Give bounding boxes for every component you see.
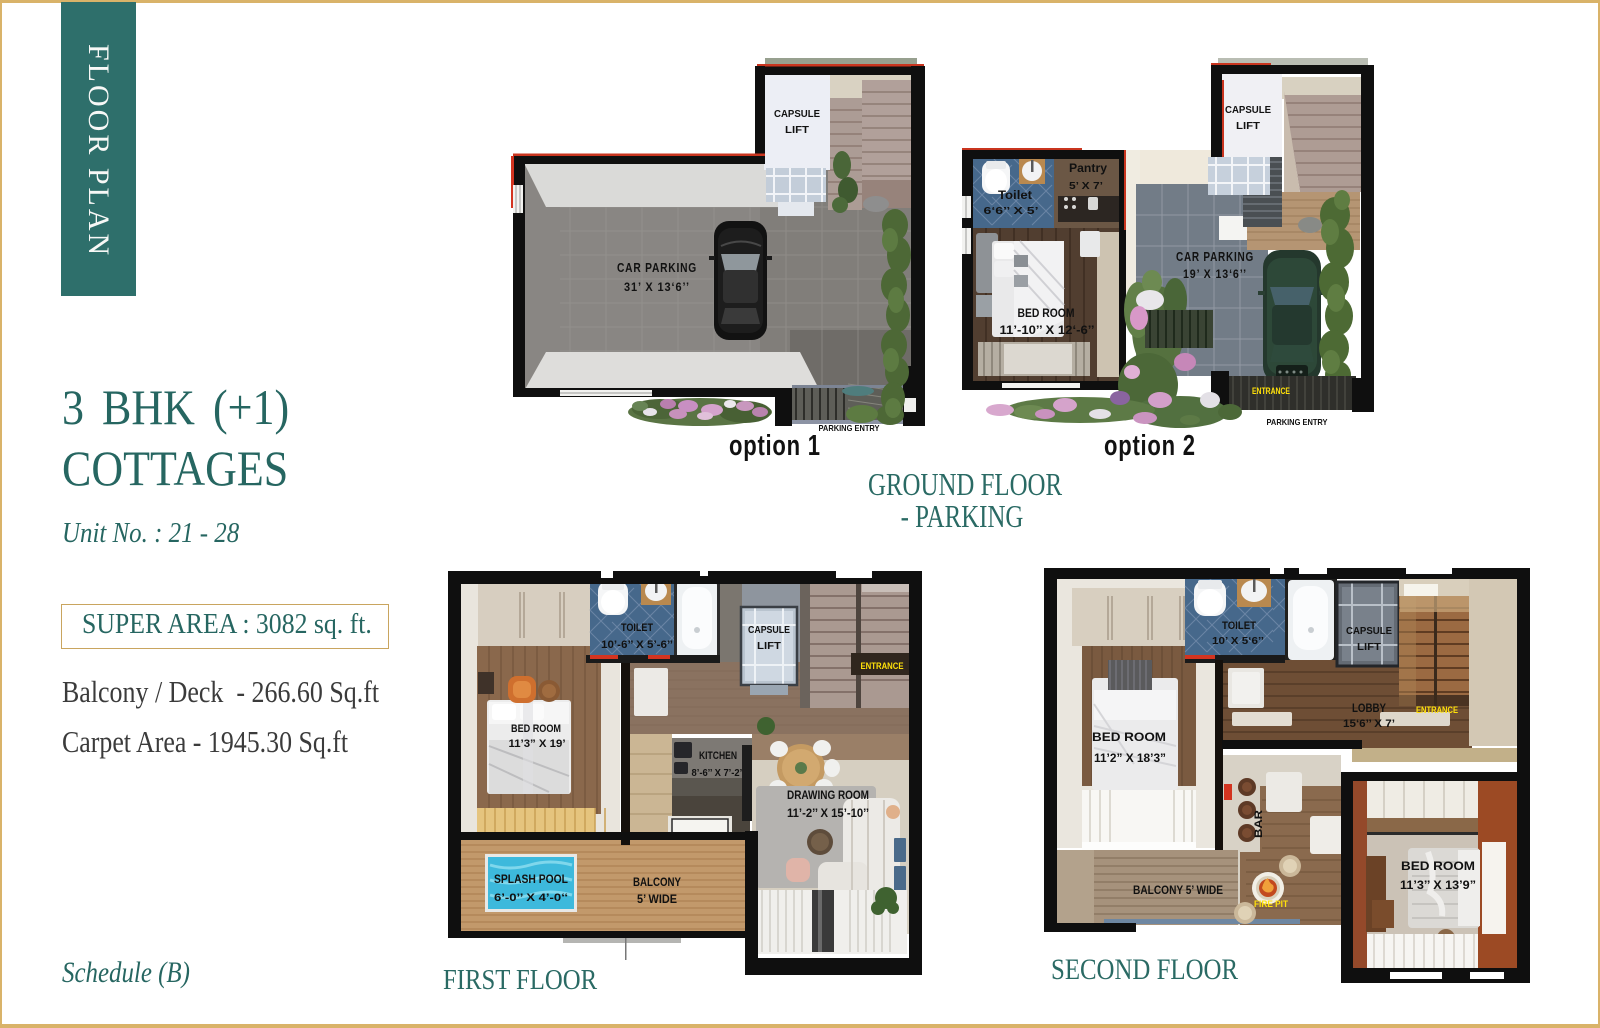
svg-text:CAPSULE: CAPSULE [1225, 105, 1271, 116]
svg-text:BED ROOM: BED ROOM [1401, 859, 1475, 873]
svg-text:31’ X 13‘6’’: 31’ X 13‘6’’ [624, 280, 690, 294]
svg-text:Toilet: Toilet [998, 188, 1032, 202]
svg-text:6’-0’’ X 4’-0‘‘: 6’-0’’ X 4’-0‘‘ [494, 892, 568, 904]
svg-text:BED ROOM: BED ROOM [1092, 732, 1166, 744]
svg-text:CAR PARKING: CAR PARKING [617, 260, 697, 275]
svg-text:TOILET: TOILET [621, 622, 653, 634]
svg-text:BED ROOM: BED ROOM [1018, 308, 1075, 320]
svg-text:KITCHEN: KITCHEN [699, 750, 737, 762]
svg-text:19’ X 13‘6’’: 19’ X 13‘6’’ [1183, 267, 1247, 281]
svg-text:11’2” X 18’3”: 11’2” X 18’3” [1094, 753, 1166, 765]
svg-text:LIFT: LIFT [757, 641, 781, 652]
svg-text:11’-10’’ X 12‘-6’’: 11’-10’’ X 12‘-6’’ [1000, 323, 1095, 337]
svg-text:ENTRANCE: ENTRANCE [861, 661, 904, 672]
svg-text:10’-6’’ X 5’-6’’: 10’-6’’ X 5’-6’’ [601, 639, 673, 651]
svg-text:11’3” X 19’: 11’3” X 19’ [509, 738, 566, 750]
svg-text:FIRE PIT: FIRE PIT [1254, 899, 1288, 910]
svg-text:TOILET: TOILET [1222, 620, 1256, 632]
svg-text:PARKING ENTRY: PARKING ENTRY [1267, 417, 1328, 427]
svg-text:SPLASH POOL: SPLASH POOL [494, 874, 568, 886]
svg-text:11’3’’ X 13’9”: 11’3’’ X 13’9” [1400, 878, 1476, 892]
svg-text:LOBBY: LOBBY [1352, 703, 1386, 715]
svg-text:5’ X 7’: 5’ X 7’ [1069, 180, 1103, 192]
svg-text:BED ROOM: BED ROOM [511, 723, 561, 735]
svg-text:6‘6’’ X 5’: 6‘6’’ X 5’ [984, 205, 1039, 217]
svg-text:ENTRANCE: ENTRANCE [1252, 386, 1290, 397]
svg-text:PARKING ENTRY: PARKING ENTRY [819, 423, 880, 433]
svg-text:CAR PARKING: CAR PARKING [1176, 249, 1254, 264]
svg-text:ENTRANCE: ENTRANCE [1416, 705, 1458, 716]
svg-text:CAPSULE: CAPSULE [1346, 626, 1392, 637]
svg-text:BALCONY: BALCONY [633, 877, 681, 889]
svg-text:Pantry: Pantry [1069, 161, 1107, 175]
svg-text:LIFT: LIFT [785, 125, 809, 136]
svg-text:11’-2’’ X 15’-10’’: 11’-2’’ X 15’-10’’ [787, 808, 869, 820]
svg-text:10’ X 5‘6’’: 10’ X 5‘6’’ [1212, 635, 1264, 647]
svg-text:CAPSULE: CAPSULE [774, 109, 820, 120]
svg-text:LIFT: LIFT [1236, 121, 1260, 132]
svg-text:CAPSULE: CAPSULE [748, 625, 790, 636]
svg-text:DRAWING ROOM: DRAWING ROOM [787, 788, 869, 802]
svg-text:LIFT: LIFT [1357, 642, 1381, 653]
svg-text:BALCONY 5’ WIDE: BALCONY 5’ WIDE [1133, 885, 1223, 897]
svg-text:15‘6’’ X 7’: 15‘6’’ X 7’ [1343, 718, 1395, 730]
svg-text:5’ WIDE: 5’ WIDE [637, 894, 677, 906]
svg-text:8’-6’’ X 7’-2’’: 8’-6’’ X 7’-2’’ [692, 767, 745, 779]
svg-text:BAR: BAR [1253, 810, 1265, 838]
